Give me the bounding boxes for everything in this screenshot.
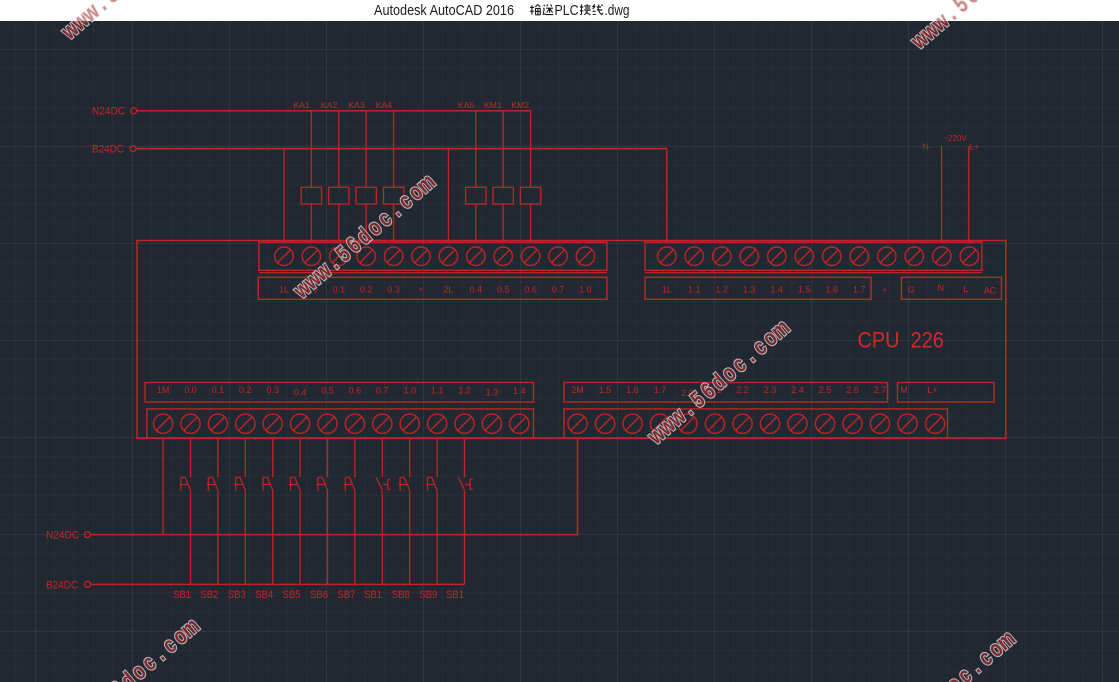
svg-text:SB5: SB5	[283, 589, 301, 601]
svg-text:L+: L+	[927, 385, 937, 395]
svg-text:SB3: SB3	[228, 589, 246, 601]
svg-text:1L: 1L	[662, 285, 672, 295]
svg-text:0.2: 0.2	[239, 385, 252, 395]
svg-text:1.2: 1.2	[458, 385, 471, 395]
svg-text:PLC: PLC	[555, 3, 579, 19]
svg-text:CPU 226: CPU 226	[858, 327, 944, 352]
svg-text:*: *	[883, 287, 887, 297]
svg-text:B24DC: B24DC	[46, 580, 78, 592]
svg-text:~220V: ~220V	[943, 134, 967, 143]
svg-text:KA3: KA3	[348, 100, 365, 110]
svg-text:1.3: 1.3	[743, 285, 756, 295]
svg-text:0.6: 0.6	[349, 385, 362, 395]
svg-text:SB9: SB9	[419, 589, 437, 601]
svg-text:KM2: KM2	[511, 100, 529, 110]
svg-text:1.6: 1.6	[826, 285, 839, 295]
svg-text:SB7: SB7	[337, 589, 355, 601]
svg-text:1.5: 1.5	[599, 385, 612, 395]
svg-text:N24DC: N24DC	[46, 530, 79, 542]
svg-text:SB2: SB2	[200, 589, 218, 601]
svg-text:SB6: SB6	[310, 589, 328, 601]
svg-text:2.7: 2.7	[874, 385, 887, 395]
svg-text:0.4: 0.4	[294, 387, 307, 397]
svg-text:1L: 1L	[279, 285, 289, 295]
svg-text:0.0: 0.0	[184, 385, 197, 395]
svg-text:2.2: 2.2	[736, 385, 749, 395]
svg-text:SB1: SB1	[364, 589, 382, 601]
svg-text:1.3: 1.3	[486, 387, 499, 397]
svg-text:M: M	[900, 385, 908, 395]
svg-text:2M: 2M	[571, 385, 584, 395]
svg-text:0.2: 0.2	[360, 285, 373, 295]
svg-text:1.5: 1.5	[798, 285, 811, 295]
svg-text:1.0: 1.0	[403, 385, 416, 395]
svg-text:*: *	[419, 286, 423, 296]
svg-text:0.1: 0.1	[212, 385, 225, 395]
svg-text:KM1: KM1	[484, 100, 502, 110]
svg-text:N24DC: N24DC	[92, 106, 125, 118]
svg-text:KA2: KA2	[321, 100, 338, 110]
svg-text:2.3: 2.3	[764, 385, 777, 395]
svg-text:AC: AC	[984, 286, 997, 296]
svg-text:L: L	[963, 284, 968, 294]
svg-text:2.5: 2.5	[819, 385, 832, 395]
svg-text:N: N	[937, 283, 944, 293]
svg-text:0.4: 0.4	[470, 285, 483, 295]
svg-text:KA1: KA1	[293, 100, 310, 110]
svg-text:N-: N-	[923, 142, 932, 151]
svg-text:1.0: 1.0	[579, 285, 592, 295]
svg-text:0.7: 0.7	[552, 285, 565, 295]
svg-text:KA4: KA4	[376, 100, 393, 110]
svg-text:SB8: SB8	[392, 589, 410, 601]
svg-text:0.6: 0.6	[524, 285, 537, 295]
svg-text:0.3: 0.3	[387, 285, 400, 295]
svg-text:2L: 2L	[443, 285, 453, 295]
svg-text:SB4: SB4	[255, 589, 273, 601]
svg-text:G: G	[908, 285, 915, 295]
svg-text:1M: 1M	[157, 385, 170, 395]
svg-text:0.1: 0.1	[333, 285, 346, 295]
svg-text:1.1: 1.1	[431, 385, 444, 395]
svg-text:1.1: 1.1	[688, 285, 701, 295]
svg-text:0.5: 0.5	[497, 285, 510, 295]
svg-text:KA5: KA5	[458, 100, 475, 110]
svg-text:0.5: 0.5	[321, 385, 334, 395]
svg-text:0.7: 0.7	[376, 385, 389, 395]
svg-text:2.4: 2.4	[791, 385, 804, 395]
svg-text:1.7: 1.7	[654, 385, 667, 395]
svg-text:B24DC: B24DC	[92, 143, 124, 155]
svg-text:SB1: SB1	[446, 589, 464, 601]
svg-text:Autodesk AutoCAD 2016: Autodesk AutoCAD 2016	[374, 3, 514, 19]
svg-text:2.6: 2.6	[846, 385, 859, 395]
svg-text:1.4: 1.4	[771, 285, 784, 295]
svg-text:L+: L+	[970, 142, 979, 151]
svg-text:SB1: SB1	[173, 589, 191, 601]
svg-text:1.6: 1.6	[626, 385, 639, 395]
svg-text:0.3: 0.3	[266, 385, 279, 395]
svg-text:1.2: 1.2	[716, 285, 729, 295]
svg-text:.dwg: .dwg	[605, 3, 630, 19]
svg-text:1.7: 1.7	[853, 285, 866, 295]
svg-text:1.4: 1.4	[513, 386, 526, 396]
